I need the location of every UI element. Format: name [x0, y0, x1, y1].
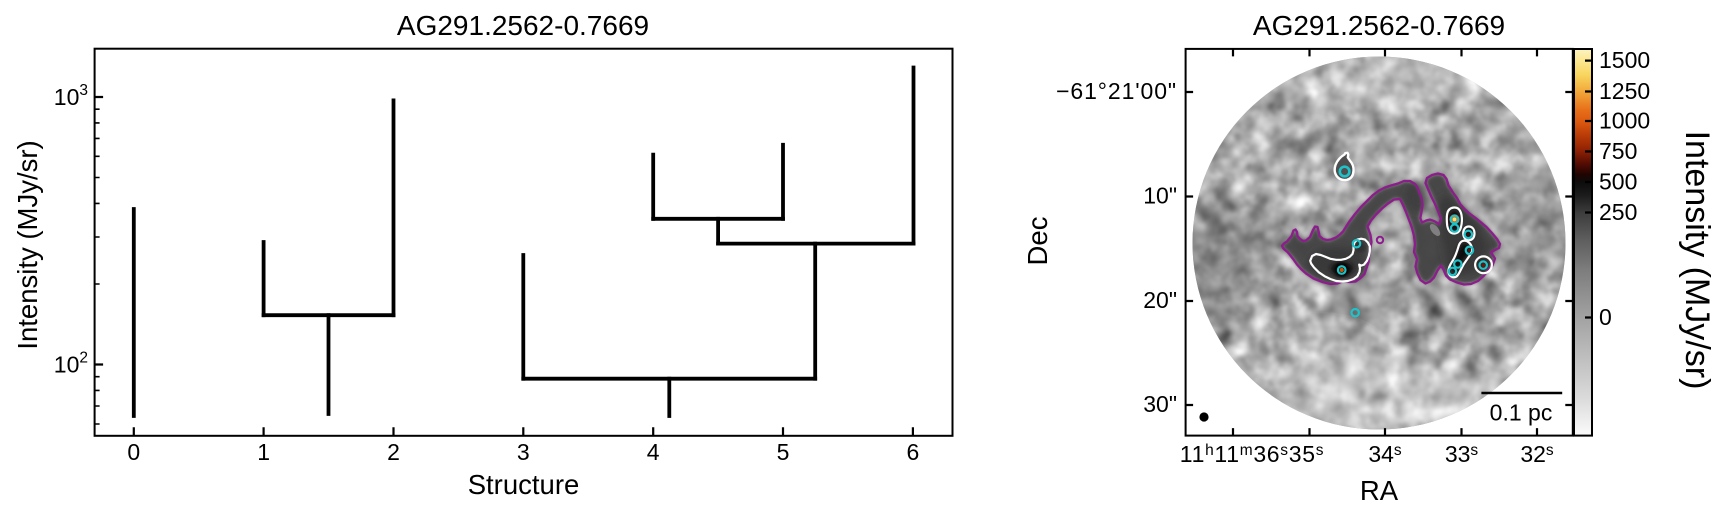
svg-text:6: 6 — [907, 439, 920, 465]
svg-text:11h11m36s35s: 11h11m36s35s — [1180, 441, 1324, 467]
svg-text:500: 500 — [1599, 169, 1637, 195]
svg-text:AG291.2562-0.7669: AG291.2562-0.7669 — [1253, 10, 1505, 41]
svg-text:0.1 pc: 0.1 pc — [1490, 400, 1553, 426]
svg-text:1250: 1250 — [1599, 78, 1650, 104]
svg-text:0: 0 — [127, 439, 140, 465]
svg-text:34s: 34s — [1368, 441, 1402, 467]
svg-text:4: 4 — [647, 439, 660, 465]
svg-text:1: 1 — [257, 439, 270, 465]
svg-text:AG291.2562-0.7669: AG291.2562-0.7669 — [397, 10, 649, 41]
svg-text:Structure: Structure — [468, 469, 580, 500]
svg-text:33s: 33s — [1445, 441, 1479, 467]
svg-text:30": 30" — [1143, 391, 1177, 417]
svg-text:20": 20" — [1143, 287, 1177, 313]
svg-text:750: 750 — [1599, 138, 1637, 164]
svg-text:10": 10" — [1143, 183, 1177, 209]
svg-text:3: 3 — [517, 439, 530, 465]
svg-text:Intensity (MJy/sr): Intensity (MJy/sr) — [12, 140, 43, 349]
svg-text:−61°21'00": −61°21'00" — [1056, 78, 1177, 104]
svg-text:RA: RA — [1360, 475, 1399, 506]
svg-text:32s: 32s — [1520, 441, 1554, 467]
svg-text:250: 250 — [1599, 199, 1637, 225]
svg-text:5: 5 — [777, 439, 790, 465]
svg-text:1500: 1500 — [1599, 47, 1650, 73]
svg-text:Dec: Dec — [1022, 216, 1053, 265]
svg-text:102: 102 — [54, 350, 88, 378]
svg-text:2: 2 — [387, 439, 400, 465]
svg-text:Intensity (MJy/sr): Intensity (MJy/sr) — [1678, 131, 1714, 390]
svg-text:0: 0 — [1599, 304, 1612, 330]
svg-text:1000: 1000 — [1599, 108, 1650, 134]
svg-text:103: 103 — [54, 82, 88, 110]
